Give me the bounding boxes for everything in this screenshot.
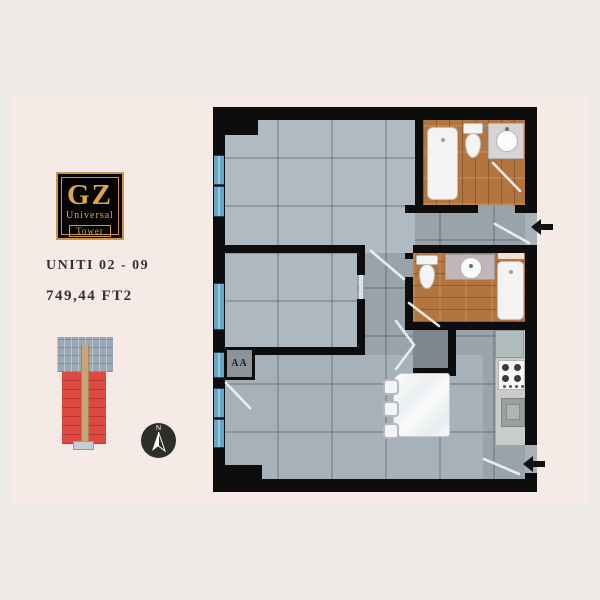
logo-frame [61,177,119,235]
door-closet-b [396,345,414,369]
compass-icon: N [141,423,176,458]
unit-area-label: 749,44 FT2 [46,288,133,305]
door-closet-a [396,321,414,345]
door-swing-lines [213,107,537,492]
door-bedroom2 [226,383,250,408]
locator-lobby [73,441,94,450]
door-entry1 [495,224,529,243]
door-entry2 [484,459,519,474]
building-locator-map [57,337,113,450]
door-bathroom2 [371,251,404,279]
floor-plan: AA [213,107,537,492]
brand-logo: GZ Universal Tower [56,172,124,240]
door-bathroom1 [493,163,520,191]
compass-north-label: N [141,425,176,432]
entry-arrow-icon-bottom [523,456,545,472]
page: GZ Universal Tower UNITI 02 - 09 749,44 … [0,0,600,600]
door-bathroom2-inner [409,303,439,326]
locator-corridor [81,345,89,444]
unit-number-label: UNITI 02 - 09 [46,258,149,274]
entry-arrow-icon-top [531,219,553,235]
